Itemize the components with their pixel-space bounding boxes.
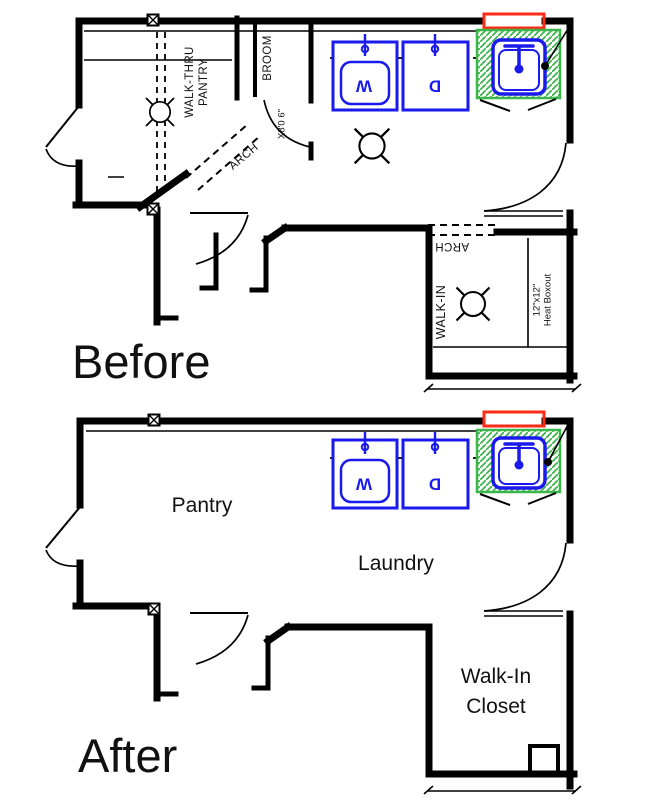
dryer-label: D xyxy=(429,475,441,494)
washer-label: W xyxy=(355,475,372,494)
heat-boxout-label-line1: 12"x12" xyxy=(532,284,543,317)
before-washer: W xyxy=(333,34,397,110)
after-title: After xyxy=(78,729,177,782)
after-washer: W xyxy=(333,432,397,508)
before-dryer: D xyxy=(403,34,468,110)
column-marker-icon xyxy=(148,204,159,215)
after-closet-door-arc xyxy=(484,543,566,611)
before-title: Before xyxy=(72,335,210,388)
washer-label: W xyxy=(355,77,372,96)
before-plan: W D WALK-THRU PANTRY BROOM xyxy=(46,14,581,392)
arch-label-pantry: ARCH xyxy=(227,141,261,172)
room-label-laundry: Laundry xyxy=(358,552,434,575)
dryer-label: D xyxy=(429,77,441,96)
after-bay-door-leaf xyxy=(46,507,80,548)
floor-plan-svg: W D WALK-THRU PANTRY BROOM xyxy=(0,0,650,800)
after-plan: W D Pantry Laundry Walk-In Closet After xyxy=(46,412,581,794)
after-closet-door-leaf xyxy=(484,611,563,616)
counter-front-lines xyxy=(480,493,556,505)
room-label-pantry: Pantry xyxy=(172,494,233,517)
before-sink-counter xyxy=(477,24,571,111)
before-left-lower-walls xyxy=(76,163,285,322)
room-label-walk-thru-line2: PANTRY xyxy=(198,58,210,106)
ceiling-fan-icon xyxy=(355,129,390,164)
after-bay-door-arc xyxy=(46,550,80,566)
before-arch-opening-walkin xyxy=(428,225,497,235)
after-dryer: D xyxy=(403,432,468,508)
before-right-door-arc xyxy=(484,143,566,211)
room-label-walk-in: WALK-IN xyxy=(434,285,448,339)
ceiling-fan-icon xyxy=(457,288,490,321)
sink-drain-icon xyxy=(515,461,524,470)
before-bay-door-leaf xyxy=(46,106,79,147)
after-window xyxy=(484,412,544,426)
after-sink-counter xyxy=(477,421,570,505)
floor-plan-comparison: W D WALK-THRU PANTRY BROOM xyxy=(0,0,650,800)
before-bay-door-arc xyxy=(46,149,79,166)
column-marker-icon xyxy=(148,15,159,26)
sink-drain-icon xyxy=(515,65,524,74)
before-window xyxy=(484,14,544,28)
before-right-door-leaf xyxy=(484,211,563,216)
dimension-line xyxy=(424,384,581,392)
room-label-closet-line1: Walk-In xyxy=(461,665,531,688)
room-label-broom: BROOM xyxy=(262,35,274,80)
before-hall-door-arc xyxy=(196,215,248,264)
room-label-walk-thru-line1: WALK-THRU xyxy=(184,46,196,118)
counter-front-lines xyxy=(480,99,556,111)
door-size-label: X8'0 6" xyxy=(277,109,288,139)
after-hall-door-arc xyxy=(196,615,248,664)
dimension-line xyxy=(424,786,581,794)
room-label-closet-line2: Closet xyxy=(466,695,526,718)
column-marker-icon xyxy=(149,415,160,426)
column-marker-icon xyxy=(149,604,160,615)
ceiling-fan-icon xyxy=(146,98,174,126)
after-heat-boxout xyxy=(530,746,558,773)
heat-boxout-label-line2: Heat Boxout xyxy=(543,274,554,327)
arch-label-walkin: ARCH xyxy=(435,240,469,252)
after-left-lower-walls xyxy=(76,563,288,698)
after-hall-stubs xyxy=(157,638,268,694)
